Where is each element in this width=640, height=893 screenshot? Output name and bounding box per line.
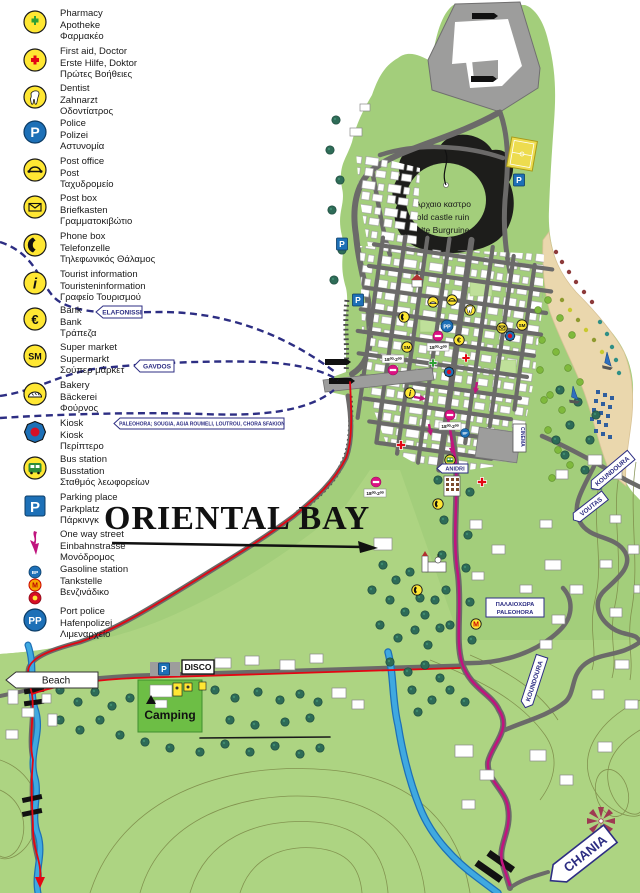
legend-label-en: Post box bbox=[60, 193, 132, 205]
dentist-icon bbox=[22, 84, 48, 110]
legend-item-police: P PolicePolizeiΑστυνομία bbox=[22, 118, 104, 153]
svg-text:M: M bbox=[473, 622, 479, 629]
svg-text:18⁰⁰-2⁰⁰: 18⁰⁰-2⁰⁰ bbox=[441, 424, 458, 430]
legend-label-de: Tankstelle bbox=[60, 576, 128, 588]
legend-label-gr: Αστυνομία bbox=[60, 141, 104, 153]
legend-label-gr: Σταθμός λεωφορείων bbox=[60, 477, 150, 489]
legend-label-de: Busstation bbox=[60, 466, 150, 478]
svg-text:P: P bbox=[30, 124, 39, 140]
legend-label-en: Pharmacy bbox=[60, 8, 104, 20]
phone-box-icon bbox=[22, 232, 48, 258]
port-police-icon: PP bbox=[441, 320, 453, 332]
hours-sign: 18⁰⁰-2⁰⁰ bbox=[382, 355, 404, 363]
metro-icon: M bbox=[471, 619, 481, 629]
legend-item-tourist-info: i Tourist informationTouristeninformatio… bbox=[22, 269, 146, 304]
svg-text:SM: SM bbox=[28, 352, 42, 362]
no-entry-sign bbox=[433, 331, 443, 341]
svg-text:BP: BP bbox=[32, 570, 38, 575]
bus-station-icon bbox=[22, 455, 48, 481]
legend-label-gr: Σούπερ μάρκετ bbox=[60, 365, 124, 377]
legend-item-dentist: DentistZahnarztΟδοντίατρος bbox=[22, 83, 113, 118]
hours-sign: 18⁰⁰-2⁰⁰ bbox=[427, 343, 449, 351]
post-box-icon bbox=[22, 194, 48, 220]
legend-item-first-aid: First aid, DoctorErste Hilfe, DoktorΠρώτ… bbox=[22, 46, 137, 81]
legend-label-de: Telefonzelle bbox=[60, 243, 155, 255]
legend-label-gr: Πρώτες Βοήθειες bbox=[60, 69, 137, 81]
svg-text:€: € bbox=[457, 338, 461, 345]
tourist-info-icon: i bbox=[22, 270, 48, 296]
bank-icon: € bbox=[454, 335, 464, 345]
legend-label-de: Bank bbox=[60, 317, 97, 329]
parking-sign: P bbox=[353, 294, 364, 306]
legend-item-post-office: Post officePostΤαχυδρομείο bbox=[22, 156, 114, 191]
svg-text:P: P bbox=[161, 664, 167, 674]
supermarket-icon: SM bbox=[22, 343, 48, 369]
hotel-building bbox=[444, 476, 460, 496]
post-box-icon bbox=[497, 323, 507, 333]
cinema-label: CINEMA bbox=[519, 427, 525, 447]
svg-text:P: P bbox=[516, 175, 522, 185]
football-field bbox=[507, 137, 538, 171]
castle-label-en: old castle ruin bbox=[417, 212, 470, 222]
svg-text:BP: BP bbox=[463, 432, 469, 436]
svg-text:P: P bbox=[30, 499, 40, 516]
phone-icon bbox=[433, 499, 443, 509]
bank-icon: € bbox=[22, 306, 48, 332]
legend-label-en: First aid, Doctor bbox=[60, 46, 137, 58]
parking-sign: P bbox=[337, 238, 348, 250]
pharmacy-icon bbox=[22, 9, 48, 35]
legend-label-de: Hafenpolizei bbox=[60, 618, 112, 630]
legend-label-de: Post bbox=[60, 168, 114, 180]
legend-item-port-police: PP Port policeHafenpolizeiΛιμεναρχείο bbox=[22, 606, 112, 641]
legend-label-de: Kiosk bbox=[60, 430, 104, 442]
svg-text:ANIDRI: ANIDRI bbox=[445, 467, 465, 473]
legend-item-gasoline: BP M Gasoline stationTankstelleΒενζινάδι… bbox=[22, 564, 128, 605]
one-way-arrow-icon bbox=[22, 530, 48, 556]
svg-text:€: € bbox=[31, 312, 38, 327]
kiosk-icon bbox=[444, 367, 454, 377]
svg-text:18⁰⁰-2⁰⁰: 18⁰⁰-2⁰⁰ bbox=[384, 357, 401, 363]
camping-label: Camping bbox=[144, 708, 195, 722]
legend-label-gr: Γραμματοκιβώτιο bbox=[60, 216, 132, 228]
legend-label-en: Port police bbox=[60, 606, 112, 618]
legend-label-de: Apotheke bbox=[60, 20, 104, 32]
legend-item-kiosk: KioskKioskΠερίπτερο bbox=[22, 418, 104, 453]
legend-label-en: Police bbox=[60, 118, 104, 130]
legend-label-en: Post office bbox=[60, 156, 114, 168]
sign-anidri: ANIDRI bbox=[437, 464, 468, 473]
legend-label-en: Tourist information bbox=[60, 269, 146, 281]
supermarket-icon: SM bbox=[517, 320, 527, 330]
legend-label-en: Super market bbox=[60, 342, 124, 354]
legend-label-de: Touristeninformation bbox=[60, 281, 146, 293]
supermarket-icon: SM bbox=[402, 342, 412, 352]
legend-label-de: Briefkasten bbox=[60, 205, 132, 217]
hours-sign: 18⁰⁰-2⁰⁰ bbox=[439, 422, 461, 430]
legend-label-en: Kiosk bbox=[60, 418, 104, 430]
kiosk-icon bbox=[22, 419, 48, 445]
legend-label-gr: Τηλεφωνικός Θάλαμος bbox=[60, 254, 155, 266]
legend-label-en: Gasoline station bbox=[60, 564, 128, 576]
gasoline-icon: BP M bbox=[22, 565, 48, 605]
legend-item-phone-box: Phone boxTelefonzelleΤηλεφωνικός Θάλαμος bbox=[22, 231, 155, 266]
legend-label-de: Supermarkt bbox=[60, 354, 124, 366]
hours-sign: 18⁰⁰-2⁰⁰ bbox=[364, 489, 386, 497]
legend: PharmacyApothekeΦαρμακέο First aid, Doct… bbox=[0, 0, 300, 650]
legend-label-en: Phone box bbox=[60, 231, 155, 243]
parking-sign: P bbox=[514, 174, 525, 186]
disco-sign: P DISCO bbox=[150, 660, 214, 676]
svg-text:SM: SM bbox=[519, 323, 526, 328]
beach-sign: Beach bbox=[6, 672, 98, 688]
legend-label-gr: Τράπεζα bbox=[60, 328, 97, 340]
beach-label: Beach bbox=[42, 676, 70, 687]
no-entry-sign bbox=[445, 410, 455, 420]
castle-label-gr: Αρχαιο καστρο bbox=[415, 199, 471, 209]
svg-text:ΠΑΛΑΙΟΧΩΡΑ: ΠΑΛΑΙΟΧΩΡΑ bbox=[496, 602, 535, 608]
tourist-info-icon: i bbox=[405, 388, 415, 398]
no-entry-sign bbox=[371, 477, 381, 487]
svg-text:SM: SM bbox=[404, 345, 411, 350]
sign-paleohora: ΠΑΛΑΙΟΧΩΡΑ PALEOHORA bbox=[486, 598, 544, 617]
map-page: Αρχαιο καστρο old castle ruin alte Burgr… bbox=[0, 0, 640, 893]
no-entry-sign bbox=[388, 365, 398, 375]
legend-item-bakery: BakeryBäckereiΦούρνος bbox=[22, 380, 98, 415]
svg-text:18⁰⁰-2⁰⁰: 18⁰⁰-2⁰⁰ bbox=[429, 345, 446, 351]
legend-label-gr: Φούρνος bbox=[60, 403, 98, 415]
parking-sign: P bbox=[159, 663, 170, 675]
legend-item-bus-station: Bus stationBusstationΣταθμός λεωφορείων bbox=[22, 454, 150, 489]
phone-icon bbox=[399, 312, 409, 322]
legend-item-post-box: Post boxBriefkastenΓραμματοκιβώτιο bbox=[22, 193, 132, 228]
camping-area: Camping bbox=[138, 680, 206, 732]
legend-label-gr: Περίπτερο bbox=[60, 441, 104, 453]
cinema-building: CINEMA bbox=[513, 424, 526, 452]
legend-label-de: Zahnarzt bbox=[60, 95, 113, 107]
legend-label-de: Einbahnstrasse bbox=[60, 541, 125, 553]
dentist-icon bbox=[465, 305, 475, 315]
legend-label-gr: Ταχυδρομείο bbox=[60, 179, 114, 191]
gasoline-icon: BP bbox=[461, 429, 470, 438]
bakery-icon bbox=[428, 297, 438, 307]
legend-label-gr: Φαρμακέο bbox=[60, 31, 104, 43]
legend-item-pharmacy: PharmacyApothekeΦαρμακέο bbox=[22, 8, 104, 43]
svg-text:PP: PP bbox=[28, 616, 42, 627]
legend-label-gr: Οδοντίατρος bbox=[60, 106, 113, 118]
legend-item-supermarket: SM Super marketSupermarktΣούπερ μάρκετ bbox=[22, 342, 124, 377]
legend-item-bank: € BankBankΤράπεζα bbox=[22, 305, 97, 340]
svg-text:18⁰⁰-2⁰⁰: 18⁰⁰-2⁰⁰ bbox=[366, 491, 383, 497]
legend-label-en: Dentist bbox=[60, 83, 113, 95]
svg-text:P: P bbox=[339, 239, 345, 249]
legend-label-de: Erste Hilfe, Doktor bbox=[60, 58, 137, 70]
legend-label-en: Bakery bbox=[60, 380, 98, 392]
legend-label-gr: Μονόδρομος bbox=[60, 552, 125, 564]
svg-text:PP: PP bbox=[443, 324, 451, 330]
legend-label-en: Bank bbox=[60, 305, 97, 317]
post-office-icon bbox=[22, 157, 48, 183]
svg-text:M: M bbox=[32, 583, 38, 590]
port-police-icon: PP bbox=[22, 607, 48, 633]
kiosk-icon bbox=[505, 331, 515, 341]
bakery-icon bbox=[22, 381, 48, 407]
phone-icon bbox=[412, 585, 422, 595]
parking-icon: P bbox=[22, 493, 48, 519]
police-icon: P bbox=[22, 119, 48, 145]
legend-label-de: Polizei bbox=[60, 130, 104, 142]
page-title: ORIENTAL BAY bbox=[104, 500, 370, 538]
legend-label-de: Bäckerei bbox=[60, 392, 98, 404]
svg-text:PALEOHORA: PALEOHORA bbox=[497, 610, 534, 616]
castle-label-de: alte Burgruine bbox=[417, 225, 470, 235]
first-aid-icon bbox=[22, 47, 48, 73]
svg-text:P: P bbox=[355, 295, 361, 305]
legend-label-gr: Γραφείο Τουρισμού bbox=[60, 292, 146, 304]
post-office-icon bbox=[447, 295, 457, 305]
disco-label: DISCO bbox=[185, 662, 212, 672]
legend-label-en: Bus station bbox=[60, 454, 150, 466]
legend-label-gr: Λιμεναρχείο bbox=[60, 629, 112, 641]
legend-label-gr: Βενζινάδικο bbox=[60, 587, 128, 599]
